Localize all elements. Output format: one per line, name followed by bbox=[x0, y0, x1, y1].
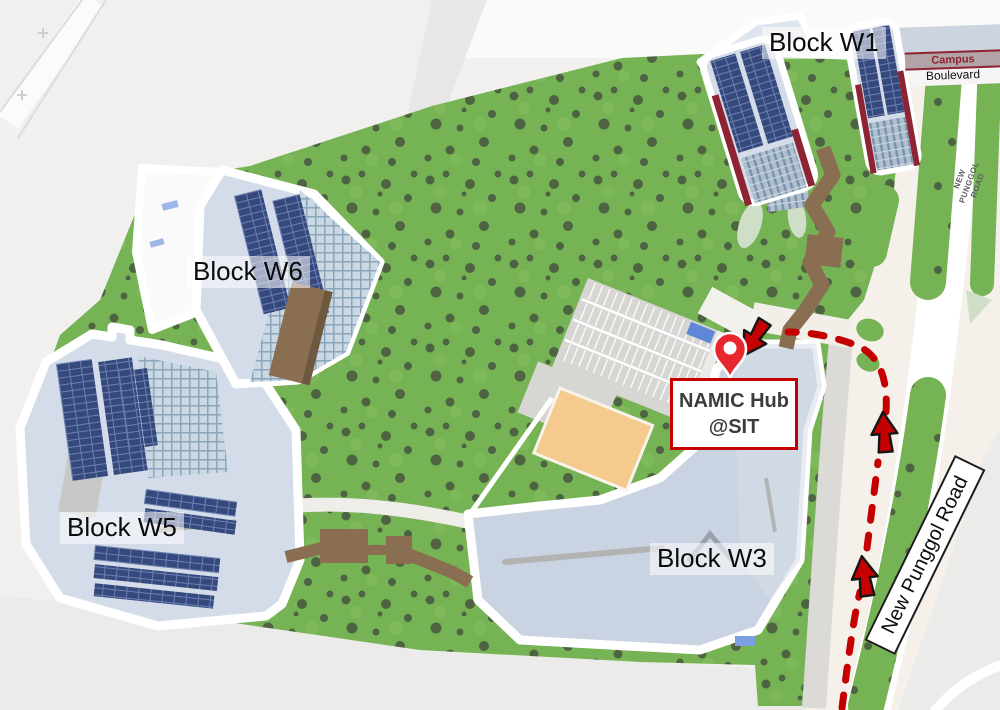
namic-callout-line1: NAMIC Hub bbox=[675, 388, 793, 414]
map-canvas bbox=[0, 0, 1000, 710]
label-block-w6: Block W6 bbox=[186, 256, 310, 288]
namic-callout-line2: @SIT bbox=[675, 414, 793, 440]
label-block-w5: Block W5 bbox=[60, 512, 184, 544]
campus-map: Block W1 Block W6 Block W5 Block W3 NAMI… bbox=[0, 0, 1000, 710]
label-block-w3: Block W3 bbox=[650, 543, 774, 575]
namic-callout: NAMIC Hub @SIT bbox=[670, 378, 798, 450]
label-block-w1: Block W1 bbox=[762, 27, 886, 59]
